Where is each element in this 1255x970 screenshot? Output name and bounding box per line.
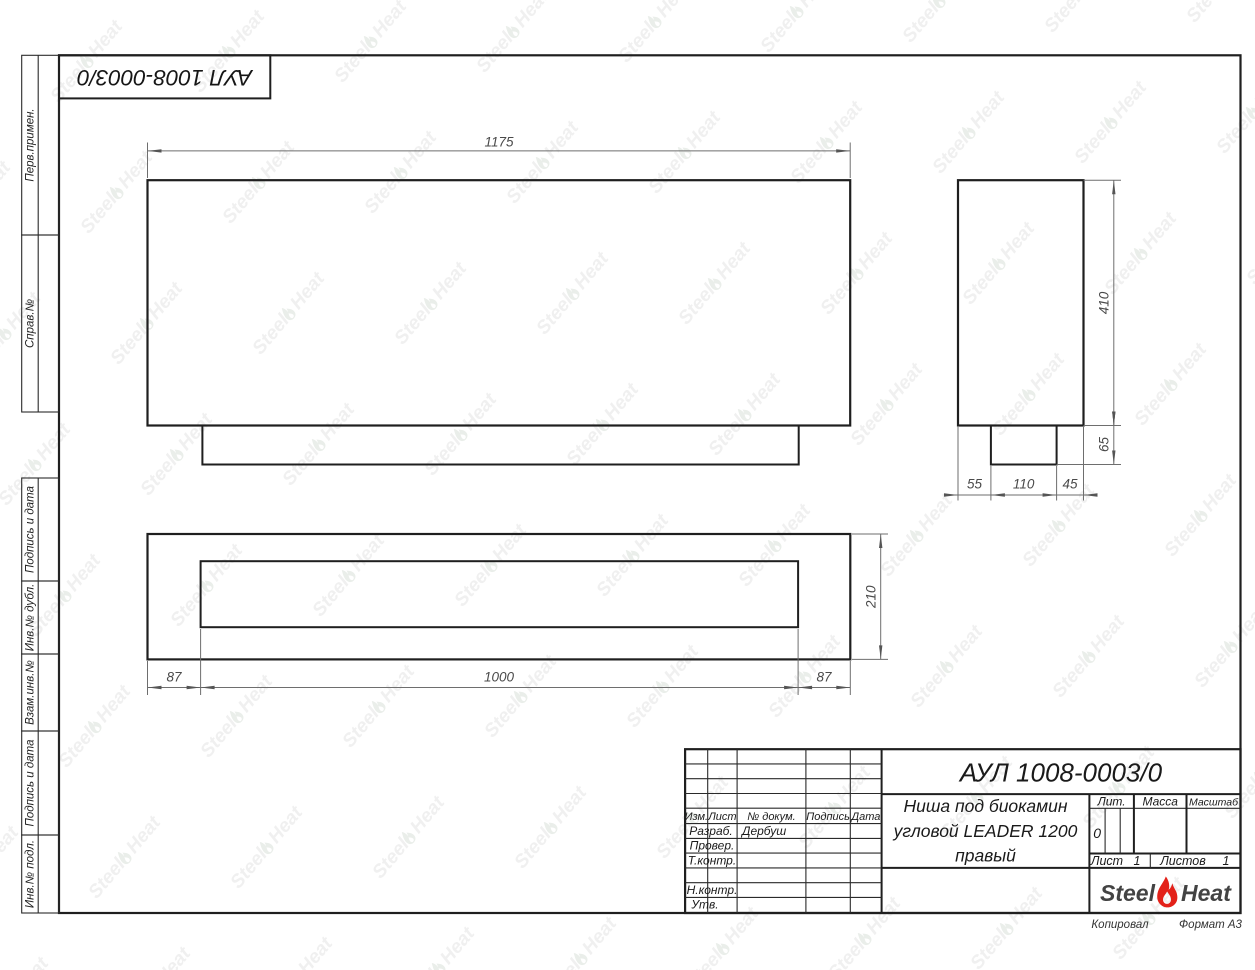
- svg-text:1: 1: [1134, 854, 1141, 868]
- svg-text:угловой LEADER 1200: угловой LEADER 1200: [893, 821, 1078, 841]
- svg-text:Подпись: Подпись: [806, 811, 850, 823]
- svg-text:АУЛ 1008-0003/0: АУЛ 1008-0003/0: [958, 758, 1163, 788]
- svg-text:Копировал: Копировал: [1091, 919, 1149, 931]
- svg-text:110: 110: [1013, 477, 1035, 492]
- svg-text:410: 410: [1097, 291, 1112, 314]
- svg-text:Взам.инв.№: Взам.инв.№: [25, 660, 37, 725]
- svg-text:Н.контр.: Н.контр.: [687, 883, 738, 897]
- svg-text:65: 65: [1097, 437, 1112, 453]
- svg-text:87: 87: [816, 670, 832, 685]
- svg-text:Листов: Листов: [1159, 854, 1206, 868]
- svg-text:Перв.примен.: Перв.примен.: [25, 108, 37, 181]
- svg-text:1000: 1000: [484, 670, 515, 685]
- svg-text:Heat: Heat: [1181, 880, 1232, 906]
- svg-text:Подпись и дата: Подпись и дата: [25, 740, 37, 827]
- svg-text:Лист: Лист: [707, 811, 736, 823]
- svg-text:Масштаб: Масштаб: [1189, 797, 1239, 809]
- svg-text:1: 1: [1223, 854, 1230, 868]
- svg-text:55: 55: [967, 477, 983, 492]
- svg-text:Т.контр.: Т.контр.: [688, 853, 736, 867]
- svg-text:Изм.: Изм.: [685, 811, 708, 823]
- svg-text:Steel: Steel: [1100, 880, 1156, 906]
- svg-text:1175: 1175: [484, 135, 514, 150]
- svg-text:Ниша под биокамин: Ниша под биокамин: [903, 796, 1067, 816]
- svg-text:Формат А3: Формат А3: [1179, 919, 1243, 931]
- svg-text:45: 45: [1062, 477, 1078, 492]
- svg-text:Дата: Дата: [849, 811, 880, 823]
- svg-text:87: 87: [166, 670, 182, 685]
- svg-text:Справ.№: Справ.№: [25, 298, 37, 348]
- svg-text:Дербуш: Дербуш: [740, 824, 786, 838]
- svg-text:0: 0: [1093, 825, 1101, 841]
- svg-text:правый: правый: [955, 846, 1016, 866]
- svg-text:Подпись и дата: Подпись и дата: [25, 486, 37, 573]
- svg-text:Лист: Лист: [1090, 854, 1123, 868]
- svg-text:Инв.№ подл.: Инв.№ подл.: [25, 840, 37, 908]
- svg-text:Утв.: Утв.: [690, 898, 718, 912]
- svg-text:Разраб.: Разраб.: [689, 824, 732, 838]
- svg-text:Провер.: Провер.: [690, 839, 735, 853]
- svg-text:Инв.№ дубл.: Инв.№ дубл.: [25, 584, 37, 652]
- svg-text:210: 210: [863, 585, 878, 609]
- svg-text:Масса: Масса: [1142, 795, 1178, 809]
- svg-text:Лит.: Лит.: [1097, 795, 1126, 809]
- svg-text:№ докум.: № докум.: [747, 811, 795, 823]
- svg-text:АУЛ 1008-0003/0: АУЛ 1008-0003/0: [77, 65, 254, 90]
